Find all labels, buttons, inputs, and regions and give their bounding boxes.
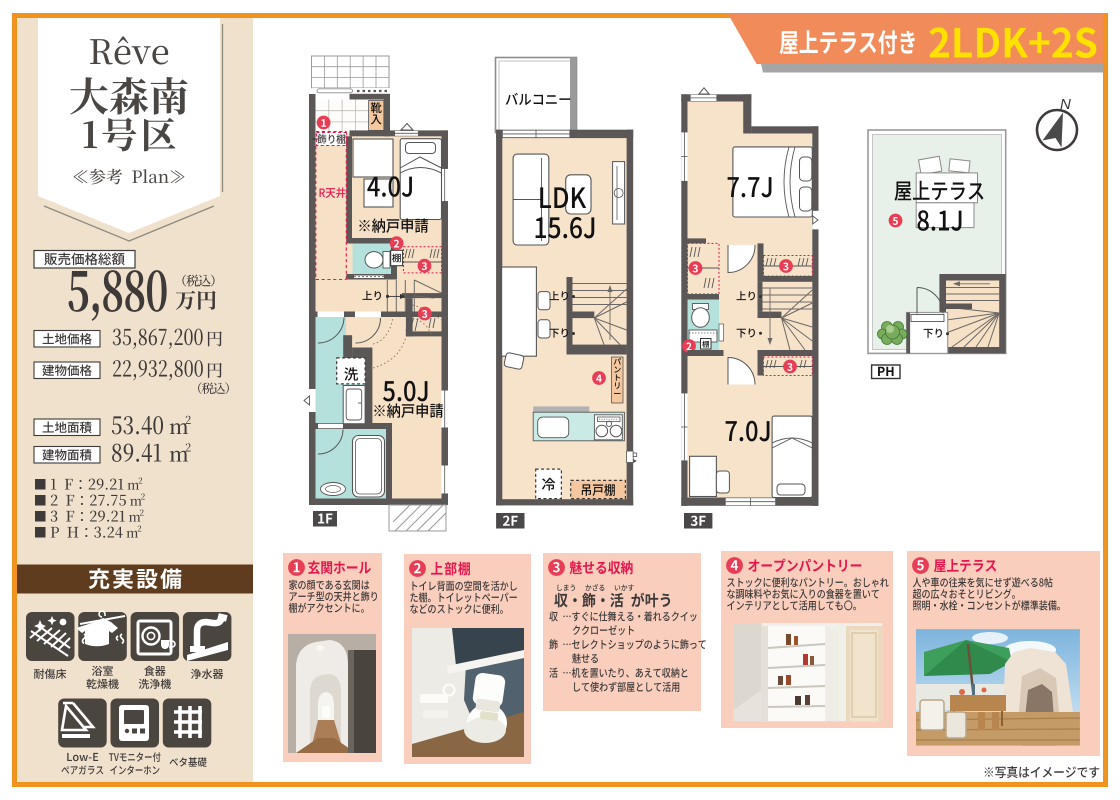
svg-text:N: N xyxy=(1060,96,1071,113)
